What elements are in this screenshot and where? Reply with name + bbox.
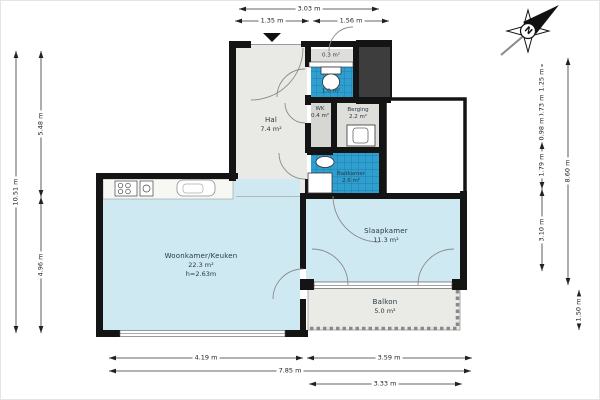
wall bbox=[229, 41, 236, 181]
toilet-tank-icon bbox=[321, 67, 341, 74]
room-name-woonkamer: Woonkamer/Keuken bbox=[165, 252, 238, 261]
dim-right-balkon: 1.50 m bbox=[575, 297, 582, 324]
wall bbox=[300, 199, 306, 269]
dim-top-right: 1.56 m bbox=[338, 17, 365, 24]
shaft bbox=[357, 41, 391, 103]
dim-bottom-right: 3.59 m bbox=[376, 354, 403, 361]
room-label-toilet: 1.0 m² bbox=[322, 88, 340, 95]
room-label-woonkamer: Woonkamer/Keuken 22.3 m² h=2.63m bbox=[165, 252, 238, 278]
room-label-slaapkamer: Slaapkamer 11.3 m² bbox=[364, 227, 408, 245]
room-label-berging: Berging 2.2 m² bbox=[347, 107, 368, 121]
room-height-woonkamer: h=2.63m bbox=[165, 270, 238, 278]
room-name-slaapkamer: Slaapkamer bbox=[364, 227, 408, 236]
meterkast-divider bbox=[309, 62, 353, 67]
dim-right-seg4: 1.79 m bbox=[538, 152, 545, 179]
dim-right-seg1: 1.25 m bbox=[538, 67, 545, 94]
wall bbox=[96, 173, 103, 337]
room-area-hal: 7.4 m² bbox=[260, 125, 281, 133]
room-area-woonkamer: 22.3 m² bbox=[165, 261, 238, 269]
oven-icon bbox=[140, 181, 153, 196]
room-label-wk: WK 0.4 m² bbox=[311, 106, 329, 120]
room-name-hal: Hal bbox=[260, 116, 281, 125]
dim-right-total: 8.60 m bbox=[564, 158, 571, 185]
washbasin-icon bbox=[316, 157, 334, 168]
wall bbox=[300, 193, 467, 199]
room-name-balkon: Balkon bbox=[373, 298, 398, 307]
wall bbox=[96, 330, 120, 337]
dim-left-total: 10.51 m bbox=[12, 176, 19, 207]
room-label-hal: Hal 7.4 m² bbox=[260, 116, 281, 134]
wall bbox=[331, 103, 337, 147]
shower-tray-icon bbox=[308, 173, 332, 193]
wall bbox=[353, 45, 359, 103]
wall bbox=[301, 41, 391, 47]
stove-icon bbox=[115, 181, 137, 196]
dim-bottom-total: 7.85 m bbox=[277, 367, 304, 374]
wall bbox=[96, 173, 238, 179]
dim-right-seg3: 0.98 m bbox=[538, 116, 545, 143]
adjacent-structure-outline bbox=[385, 99, 465, 195]
room-area-wk: 0.4 m² bbox=[311, 113, 329, 120]
entrance-arrow-icon bbox=[263, 33, 281, 42]
dim-bottom-left: 4.19 m bbox=[193, 354, 220, 361]
room-label-badkamer: Badkamer 2.6 m² bbox=[337, 171, 365, 185]
wall bbox=[460, 191, 467, 288]
room-area-berging: 2.2 m² bbox=[347, 114, 368, 121]
floorplan-canvas: N Hal 7.4 m² 0.3 m² 1.0 m² WK 0.4 m² Ber… bbox=[0, 0, 600, 400]
room-area-badkamer: 2.6 m² bbox=[337, 178, 365, 185]
room-area-toilet: 1.0 m² bbox=[322, 88, 340, 95]
wall bbox=[305, 123, 311, 149]
wall bbox=[300, 299, 306, 337]
dim-top-left: 1.35 m bbox=[259, 17, 286, 24]
wall bbox=[379, 97, 385, 199]
room-area-slaapkamer: 11.3 m² bbox=[364, 236, 408, 244]
meterkast-door-arc bbox=[329, 27, 353, 51]
room-label-meterkast: 0.3 m² bbox=[322, 52, 340, 59]
floorplan-svg bbox=[1, 1, 600, 400]
dim-bottom-balkon: 3.33 m bbox=[372, 380, 399, 387]
wall bbox=[452, 279, 467, 290]
room-area-balkon: 5.0 m² bbox=[373, 307, 398, 315]
wall bbox=[300, 279, 314, 290]
dim-left-upper: 5.48 m bbox=[37, 111, 44, 138]
wall bbox=[307, 151, 333, 155]
room-area-meterkast: 0.3 m² bbox=[322, 52, 340, 59]
room-label-balkon: Balkon 5.0 m² bbox=[373, 298, 398, 316]
dim-right-seg5: 3.10 m bbox=[538, 217, 545, 244]
dim-left-lower: 4.96 m bbox=[37, 252, 44, 279]
wall bbox=[305, 97, 391, 103]
dim-top-total: 3.03 m bbox=[296, 5, 323, 12]
